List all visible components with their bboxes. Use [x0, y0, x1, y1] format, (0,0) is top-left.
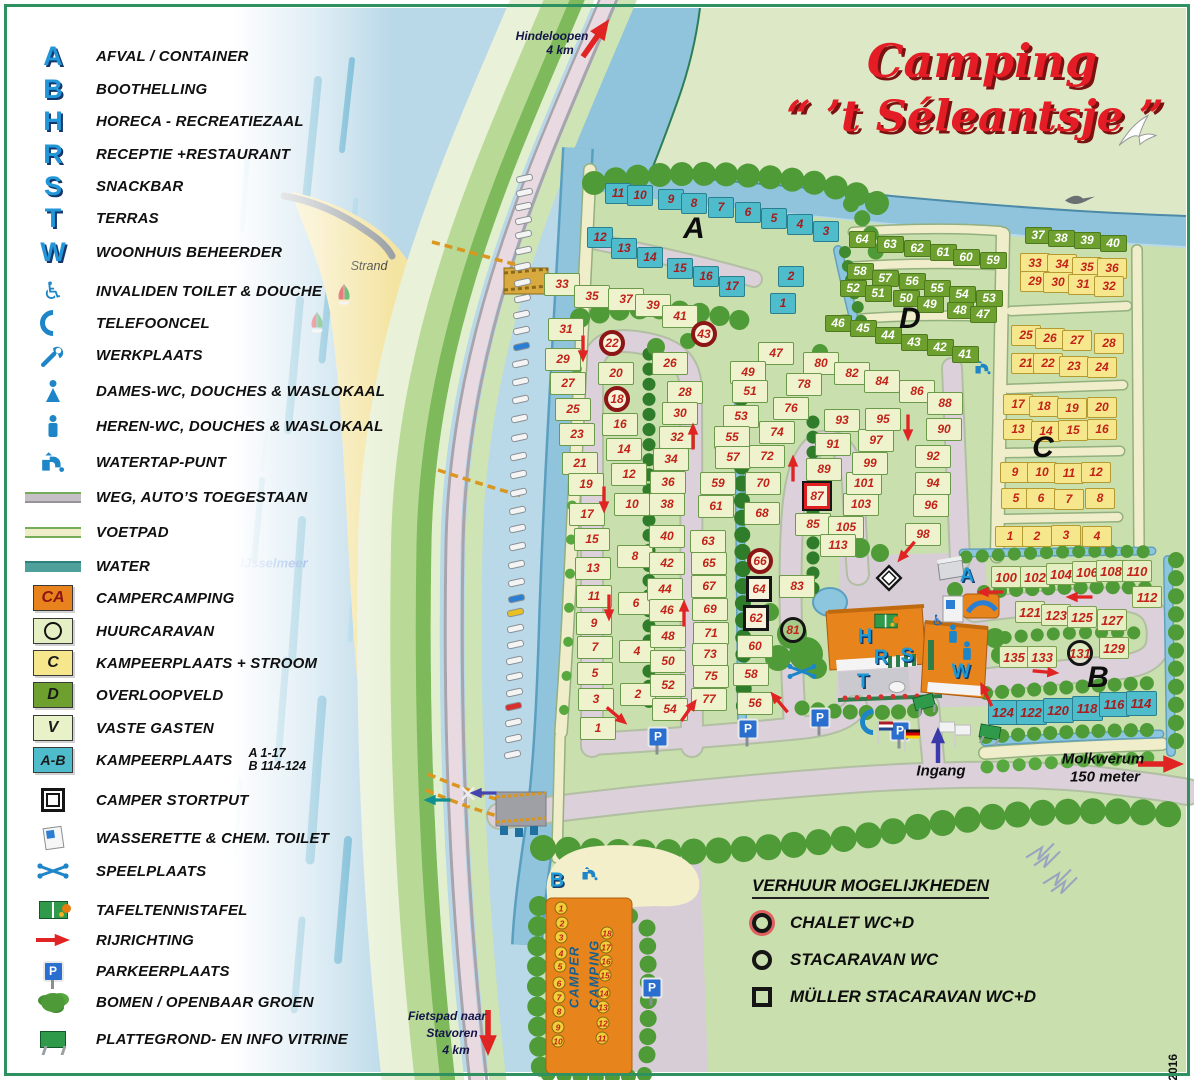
info-board-icon: [22, 1031, 84, 1048]
legend-label: SPEELPLAATS: [96, 863, 206, 880]
legend-row: AAFVAL / CONTAINER: [22, 41, 249, 71]
legend-label: WATER: [96, 558, 150, 575]
legend-row: CACAMPERCAMPING: [22, 583, 234, 613]
legend-sublabel: A 1-17B 114-124: [249, 747, 306, 773]
legend-row: HEREN-WC, DOUCHES & WASLOKAAL: [22, 411, 383, 441]
verhuur-panel: VERHUUR MOGELIJKHEDEN CHALET WC+DSTACARA…: [752, 876, 1072, 1010]
legend-row: CKAMPEERPLAATS + STROOM: [22, 648, 317, 678]
legend-label: WOONHUIS BEHEERDER: [96, 244, 282, 261]
legend-label: HUURCARAVAN: [96, 623, 214, 640]
legend-row: WWOONHUIS BEHEERDER: [22, 237, 282, 267]
watertap-icon: [22, 451, 84, 473]
verhuur-label: MÜLLER STACARAVAN WC+D: [790, 987, 1036, 1007]
verhuur-label: CHALET WC+D: [790, 913, 914, 933]
camping-map: 3335373941433129272523211917151311975312…: [0, 0, 1194, 1080]
table-tennis-icon: [22, 901, 84, 919]
legend-row: ♿INVALIDEN TOILET & DOUCHE: [22, 276, 322, 306]
legend-label: WEG, AUTO’S TOEGESTAAN: [96, 489, 307, 506]
water-swatch: [22, 561, 84, 572]
road-swatch: [22, 492, 84, 503]
legend-row: DAMES-WC, DOUCHES & WASLOKAAL: [22, 376, 385, 406]
verhuur-title: VERHUUR MOGELIJKHEDEN: [752, 876, 989, 899]
tree-icon: [22, 993, 84, 1012]
legend-label: RIJRICHTING: [96, 932, 194, 949]
camper-stortput-icon: [22, 788, 84, 812]
legend-row: VOETPAD: [22, 517, 169, 547]
footpath-swatch: [22, 527, 84, 538]
letter-s-icon: S: [22, 171, 84, 202]
legend-panel: AAFVAL / CONTAINERBBOOTHELLINGHHORECA - …: [8, 8, 394, 1072]
staca-marker-icon: [752, 950, 772, 970]
letter-h-icon: H: [22, 106, 84, 137]
muller-marker-icon: [752, 987, 772, 1007]
legend-label: PARKEERPLAATS: [96, 963, 230, 980]
legend-label: PLATTEGROND- EN INFO VITRINE: [96, 1031, 348, 1048]
legend-label: TERRAS: [96, 210, 159, 227]
legend-label: CAMPERCAMPING: [96, 590, 234, 607]
man-icon: [22, 415, 84, 438]
legend-label: BOOTHELLING: [96, 81, 207, 98]
legend-row: PPARKEERPLAATS: [22, 956, 230, 986]
legend-row: HUURCARAVAN: [22, 616, 214, 646]
legend-label: AFVAL / CONTAINER: [96, 48, 249, 65]
legend-label: HORECA - RECREATIEZAAL: [96, 113, 304, 130]
legend-label: OVERLOOPVELD: [96, 687, 223, 704]
legend-row: WEG, AUTO’S TOEGESTAAN: [22, 482, 307, 512]
legend-label: SNACKBAR: [96, 178, 183, 195]
legend-label: KAMPEERPLAATS: [96, 752, 233, 769]
legend-row: BOMEN / OPENBAAR GROEN: [22, 987, 314, 1017]
letter-w-icon: W: [22, 237, 84, 268]
legend-row: SSNACKBAR: [22, 171, 183, 201]
legend-label: HEREN-WC, DOUCHES & WASLOKAAL: [96, 418, 383, 435]
copyright: © La Route apr. 2016: [1166, 1054, 1180, 1080]
wheelchair-icon: ♿: [22, 277, 84, 305]
letter-r-icon: R: [22, 139, 84, 170]
legend-label: WERKPLAATS: [96, 347, 203, 364]
legend-label: VOETPAD: [96, 524, 169, 541]
legend-row: WATERTAP-PUNT: [22, 447, 226, 477]
legend-label: TAFELTENNISTAFEL: [96, 902, 248, 919]
wrench-icon: [22, 343, 84, 367]
legend-row: WERKPLAATS: [22, 340, 203, 370]
legend-row: TAFELTENNISTAFEL: [22, 895, 248, 925]
legend-row: RIJRICHTING: [22, 925, 194, 955]
legend-label: RECEPTIE +RESTAURANT: [96, 146, 290, 163]
legend-label: KAMPEERPLAATS + STROOM: [96, 655, 317, 672]
letter-b-icon: B: [22, 74, 84, 105]
legend-label: VASTE GASTEN: [96, 720, 214, 737]
legend-row: WATER: [22, 551, 150, 581]
campercamping-swatch: CA: [22, 585, 84, 611]
legend-row: SPEELPLAATS: [22, 856, 206, 886]
kampeerplaats-ab-swatch: A-B: [22, 747, 84, 773]
verhuur-row: STACARAVAN WC: [752, 947, 1072, 973]
legend-row: A-BKAMPEERPLAATSA 1-17B 114-124: [22, 745, 306, 775]
verhuur-row: CHALET WC+D: [752, 910, 1072, 936]
legend-label: WATERTAP-PUNT: [96, 454, 226, 471]
seesaw-icon: [22, 861, 84, 881]
chalet-marker-icon: [752, 913, 772, 933]
legend-label: BOMEN / OPENBAAR GROEN: [96, 994, 314, 1011]
huurcaravan-swatch: [22, 618, 84, 644]
legend-row: DOVERLOOPVELD: [22, 680, 223, 710]
verhuur-items: CHALET WC+DSTACARAVAN WCMÜLLER STACARAVA…: [752, 910, 1072, 1010]
legend-label: DAMES-WC, DOUCHES & WASLOKAAL: [96, 383, 385, 400]
copyright-date: apr. 2016: [1166, 1054, 1180, 1080]
kampeerplaats-stroom-swatch: C: [22, 650, 84, 676]
legend-label: WASSERETTE & CHEM. TOILET: [96, 830, 329, 847]
legend-row: BBOOTHELLING: [22, 74, 207, 104]
vaste-gasten-swatch: V: [22, 715, 84, 741]
telephone-icon: [22, 310, 84, 336]
legend-row: RRECEPTIE +RESTAURANT: [22, 139, 290, 169]
letter-t-icon: T: [22, 203, 84, 234]
legend-row: TTERRAS: [22, 203, 159, 233]
legend-row: VVASTE GASTEN: [22, 713, 214, 743]
legend-sublabel-b: B 114-124: [249, 760, 306, 773]
legend-label: CAMPER STORTPUT: [96, 792, 248, 809]
legend-row: WASSERETTE & CHEM. TOILET: [22, 823, 329, 853]
direction-arrow-icon: [22, 933, 84, 947]
washing-machine-icon: [22, 827, 84, 849]
woman-icon: [22, 380, 84, 403]
verhuur-label: STACARAVAN WC: [790, 950, 938, 970]
legend-row: TELEFOONCEL: [22, 308, 210, 338]
verhuur-row: MÜLLER STACARAVAN WC+D: [752, 984, 1072, 1010]
map-title-line1: Camping: [867, 34, 1097, 88]
legend-label: INVALIDEN TOILET & DOUCHE: [96, 283, 322, 300]
legend-row: CAMPER STORTPUT: [22, 785, 248, 815]
legend-row: HHORECA - RECREATIEZAAL: [22, 106, 304, 136]
map-title-line2: “ ’t Séleantsje ”: [786, 92, 1163, 142]
parking-sign-icon: P: [22, 961, 84, 982]
letter-a-icon: A: [22, 41, 84, 72]
overloopveld-swatch: D: [22, 682, 84, 708]
legend-label: TELEFOONCEL: [96, 315, 210, 332]
legend-row: PLATTEGROND- EN INFO VITRINE: [22, 1024, 348, 1054]
